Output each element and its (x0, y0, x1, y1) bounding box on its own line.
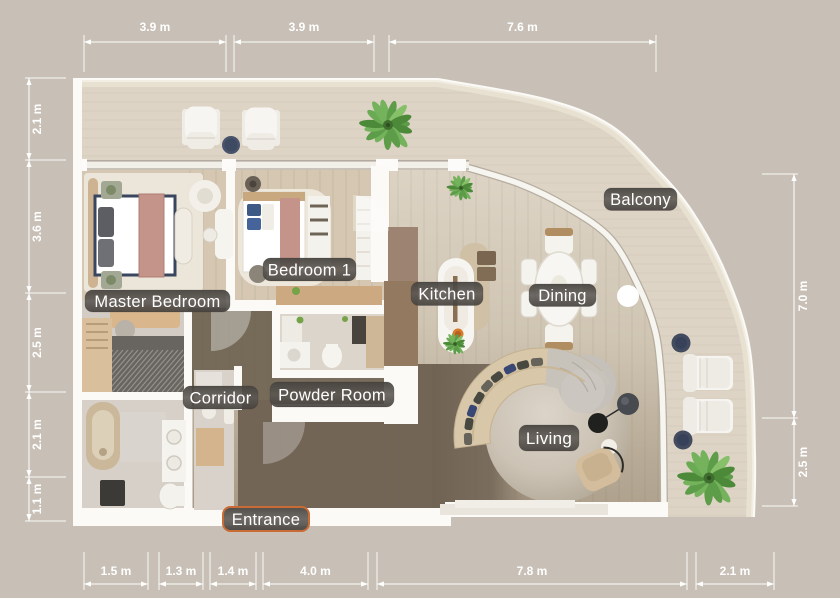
svg-text:Living: Living (526, 429, 572, 448)
svg-text:3.6 m: 3.6 m (30, 211, 44, 242)
svg-text:Balcony: Balcony (610, 191, 671, 209)
svg-text:2.1 m: 2.1 m (30, 104, 44, 135)
svg-text:1.3 m: 1.3 m (166, 564, 197, 578)
svg-text:1.1 m: 1.1 m (30, 484, 44, 515)
svg-text:1.5 m: 1.5 m (101, 564, 132, 578)
svg-text:2.1 m: 2.1 m (720, 564, 751, 578)
svg-text:3.9 m: 3.9 m (289, 20, 320, 34)
svg-text:7.8 m: 7.8 m (517, 564, 548, 578)
svg-text:Master Bedroom: Master Bedroom (94, 293, 220, 311)
svg-text:7.0 m: 7.0 m (796, 281, 810, 312)
svg-text:1.4 m: 1.4 m (218, 564, 249, 578)
svg-text:4.0 m: 4.0 m (300, 564, 331, 578)
svg-text:Kitchen: Kitchen (418, 286, 475, 304)
svg-text:Corridor: Corridor (190, 389, 252, 407)
svg-text:3.9 m: 3.9 m (140, 20, 171, 34)
svg-text:2.1 m: 2.1 m (30, 419, 44, 450)
svg-text:Powder Room: Powder Room (278, 386, 386, 404)
svg-text:Entrance: Entrance (232, 511, 300, 529)
svg-text:7.6 m: 7.6 m (507, 20, 538, 34)
svg-text:2.5 m: 2.5 m (30, 327, 44, 358)
svg-text:2.5 m: 2.5 m (796, 447, 810, 478)
svg-text:Bedroom 1: Bedroom 1 (268, 261, 351, 279)
svg-text:Dining: Dining (538, 287, 587, 305)
